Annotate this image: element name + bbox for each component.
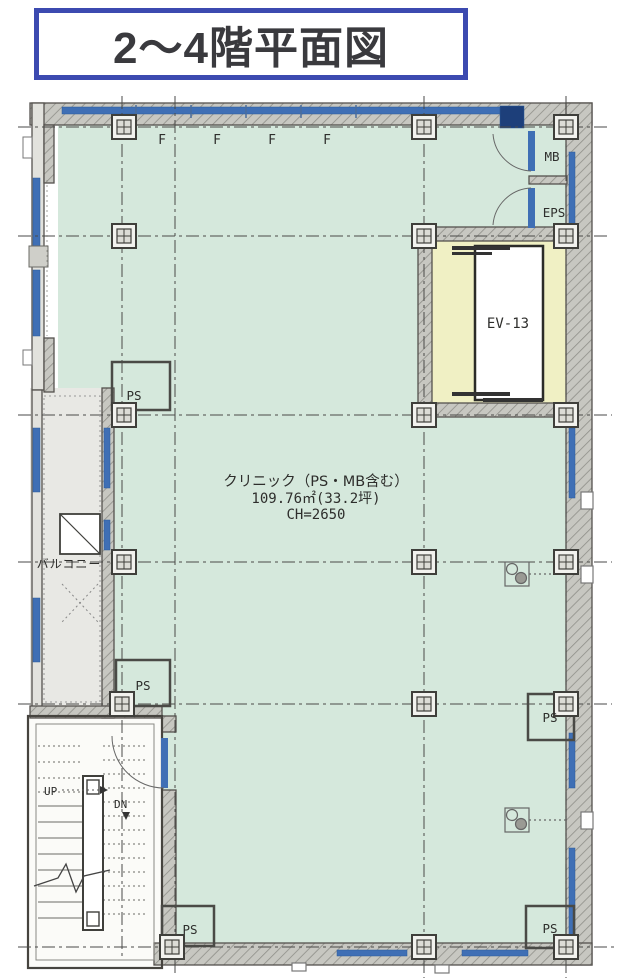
left-wall-bracket-1 xyxy=(23,137,32,158)
window-balcony-outer-1 xyxy=(33,428,40,492)
structural-column xyxy=(112,224,136,248)
window-balcony-outer-2 xyxy=(33,598,40,662)
window-bottom-2 xyxy=(462,950,528,956)
structural-column xyxy=(412,224,436,248)
elevator-door-bottom-1 xyxy=(452,392,510,396)
structural-column xyxy=(112,550,136,574)
ps-label-bottom-right: PS xyxy=(542,921,557,936)
stair-stringer xyxy=(83,776,103,930)
window-balcony-inner-1 xyxy=(104,428,110,488)
elevator-label: EV-13 xyxy=(487,316,529,332)
window-right-2 xyxy=(569,428,575,498)
window-mark-4: F xyxy=(323,133,331,148)
ps-label-mid-left: PS xyxy=(135,678,150,693)
eps-label: EPS xyxy=(543,205,566,220)
window-bottom-1 xyxy=(337,950,407,956)
wall-elevator-top xyxy=(432,227,566,241)
stair-door-panel xyxy=(161,738,168,788)
structural-column xyxy=(412,115,436,139)
left-wall-sill-box xyxy=(29,246,48,267)
stair-stringer-end-top xyxy=(87,780,99,794)
window-left-2 xyxy=(33,270,40,336)
structural-column xyxy=(110,692,134,716)
structural-column xyxy=(554,115,578,139)
structural-column xyxy=(412,692,436,716)
window-right-1 xyxy=(569,152,575,232)
structural-column xyxy=(160,935,184,959)
up-label: UP xyxy=(44,785,58,798)
wall-mb-eps-divider xyxy=(529,176,567,184)
wall-left-return-top xyxy=(44,125,54,183)
mb-label: MB xyxy=(544,149,559,164)
stair-stringer-end-bottom xyxy=(87,912,99,926)
structural-column xyxy=(412,403,436,427)
window-mark-3: F xyxy=(268,133,276,148)
wall-stair-right-upper xyxy=(162,716,176,732)
elevator-door-top-2 xyxy=(452,252,492,255)
eps-door-panel xyxy=(528,188,535,228)
structural-column xyxy=(554,224,578,248)
structural-column xyxy=(112,115,136,139)
structural-column xyxy=(554,935,578,959)
left-wall-bracket-2 xyxy=(23,350,32,365)
clinic-area-label: 109.76㎡(33.2坪) xyxy=(251,491,380,507)
floor-plan-drawing: クリニック（PS・MB含む） 109.76㎡(33.2坪) CH=2650 EV… xyxy=(0,0,620,980)
window-top-band xyxy=(62,107,500,114)
wall-elevator-left xyxy=(418,246,432,403)
window-top-right-dark xyxy=(500,106,524,128)
elevator-door-top-1 xyxy=(452,246,510,250)
bottom-wall-tab-2 xyxy=(435,965,449,973)
wall-stair-right-lower xyxy=(162,790,176,943)
structural-column xyxy=(112,403,136,427)
ps-label-mid-right: PS xyxy=(542,710,557,725)
structural-column xyxy=(554,692,578,716)
structural-column xyxy=(554,550,578,574)
clinic-room-label: クリニック（PS・MB含む） xyxy=(223,473,408,490)
window-balcony-inner-2 xyxy=(104,520,110,550)
ps-label-bottom-left: PS xyxy=(182,922,197,937)
mb-door-panel xyxy=(528,131,535,171)
structural-column xyxy=(412,550,436,574)
elevator-door-bottom-2 xyxy=(483,398,543,402)
balcony-label: バルコニー xyxy=(37,557,102,571)
bottom-wall-tab-1 xyxy=(292,963,306,971)
window-mark-1: F xyxy=(158,133,166,148)
ceiling-height-label: CH=2650 xyxy=(286,507,345,523)
window-mark-2: F xyxy=(213,133,221,148)
structural-column xyxy=(554,403,578,427)
dn-label: DN xyxy=(114,798,127,811)
wall-left-return-mid xyxy=(44,338,54,392)
structural-column xyxy=(412,935,436,959)
wall-bracket-right xyxy=(581,492,593,509)
ps-label-upper-left: PS xyxy=(126,388,141,403)
